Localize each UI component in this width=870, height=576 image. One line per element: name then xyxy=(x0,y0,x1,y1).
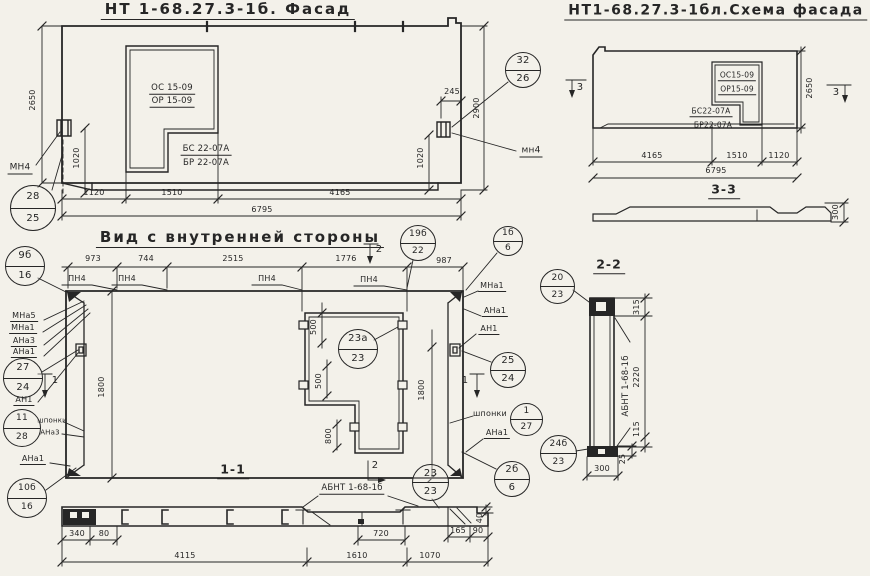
dim-s11-1070: 1070 xyxy=(419,552,440,560)
dim-facade-245: 245 xyxy=(444,88,460,96)
section-mark-1-left: 1 xyxy=(52,376,59,386)
label-ana3-left: АНа3 xyxy=(11,337,37,347)
blueprint-page: НТ 1-68.27.3-1б. Фасад ОС 15-09 ОР 15-09… xyxy=(0,0,870,576)
scheme-title: НТ1-68.27.3-1бл.Схема фасада xyxy=(564,4,867,21)
anchor-label-mn4-left: МН4 xyxy=(8,164,33,175)
section-1-1-title: 1-1 xyxy=(217,463,249,479)
facade-title: НТ 1-68.27.3-1б. Фасад xyxy=(101,2,355,20)
scheme-sill-mark-top: БС22-07А xyxy=(690,107,733,117)
callout-25-24: 2524 xyxy=(490,352,526,388)
dim-s11-40: 40 xyxy=(476,513,484,524)
section-mark-3-right: 3 xyxy=(833,88,840,98)
callout-9b-16: 9б16 xyxy=(5,246,45,286)
dim-scheme-total: 6795 xyxy=(705,167,726,175)
facade-sill-mark-top: БС 22-07А xyxy=(181,145,232,156)
label-abnt-s22: АБНТ 1-68-1б xyxy=(622,355,631,416)
dim-s11-165: 165 xyxy=(450,527,466,535)
label-ana1-left: АНа1 xyxy=(11,348,37,358)
dim-s11-4115: 4115 xyxy=(174,552,195,560)
label-pn4-1: ПН4 xyxy=(68,275,86,283)
label-pn4-4: ПН4 xyxy=(360,276,378,284)
label-shponki-left: шпонки xyxy=(37,418,67,425)
callout-1-27: 127 xyxy=(510,403,543,436)
callout-20-23: 2023 xyxy=(540,269,575,304)
callout-28-25: 2825 xyxy=(10,185,56,231)
dim-inner-1776: 1776 xyxy=(335,255,356,263)
callout-19b-22: 19б22 xyxy=(400,225,436,261)
section-mark-3-left: 3 xyxy=(577,83,584,93)
dim-inner-2515: 2515 xyxy=(222,255,243,263)
anchor-label-mn4-right: мн4 xyxy=(520,147,543,158)
dim-inner-973: 973 xyxy=(85,255,101,263)
dim-facade-1020-left: 1020 xyxy=(73,147,81,168)
dim-scheme-height: 2650 xyxy=(806,77,814,98)
label-ana3-left2: АНа3 xyxy=(40,430,60,437)
dim-s22-115: 115 xyxy=(633,421,641,437)
dim-scheme-300: 300 xyxy=(832,204,840,220)
dim-s22-2220: 2220 xyxy=(633,366,641,387)
label-mna1-left: МНа1 xyxy=(9,324,37,334)
callout-27-24: 2724 xyxy=(3,358,43,398)
dim-facade-1020-right: 1020 xyxy=(417,147,425,168)
dim-s11-1610: 1610 xyxy=(346,552,367,560)
facade-window-mark-bottom: ОР 15-09 xyxy=(150,97,195,108)
dim-scheme-4165: 4165 xyxy=(641,152,662,160)
facade-window-mark-top: ОС 15-09 xyxy=(149,84,195,95)
scheme-window-mark-top: ОС15-09 xyxy=(718,71,756,81)
scheme-window-mark-bottom: ОР15-09 xyxy=(718,85,756,95)
dim-s11-340: 340 xyxy=(69,530,85,538)
facade-sill-mark-bottom: БР 22-07А xyxy=(183,159,229,168)
label-abnt-s11: АБНТ 1-68-1б xyxy=(319,484,384,495)
dim-s11-80: 80 xyxy=(99,530,110,538)
dim-s11-90: 90 xyxy=(473,527,484,535)
label-shponki-right: шпонки xyxy=(473,410,507,418)
dim-inner-1800-left: 1800 xyxy=(98,376,106,397)
callout-32-26: 3226 xyxy=(505,52,541,88)
dim-inner-987: 987 xyxy=(436,257,452,265)
section-mark-2-top: 2 xyxy=(376,245,383,255)
dim-inner-1800-right: 1800 xyxy=(418,379,426,400)
dim-facade-4165: 4165 xyxy=(329,189,350,197)
dim-window-500-top: 500 xyxy=(310,319,318,335)
label-ana1-right: АНа1 xyxy=(482,307,508,317)
callout-1b-6: 1б6 xyxy=(493,226,523,256)
section-mark-1-right: 1 xyxy=(462,376,469,386)
dim-window-800: 800 xyxy=(325,428,333,444)
label-pn4-3: ПН4 xyxy=(258,275,276,283)
label-ana1-right2: АНа1 xyxy=(484,429,510,439)
dim-facade-1510: 1510 xyxy=(161,189,182,197)
label-pn4-2: ПН4 xyxy=(118,275,136,283)
section-2-2-title: 2-2 xyxy=(593,258,625,274)
dim-s22-300: 300 xyxy=(594,465,610,473)
dim-window-500-mid: 500 xyxy=(315,373,323,389)
callout-23-23: 2323 xyxy=(412,464,449,501)
callout-2b-6: 2б6 xyxy=(494,461,530,497)
dim-facade-total: 6795 xyxy=(251,206,272,214)
dim-inner-744: 744 xyxy=(138,255,154,263)
section-mark-2-bottom: 2 xyxy=(372,461,379,471)
label-mna1-right: МНа1 xyxy=(478,282,506,292)
dim-facade-height-left: 2650 xyxy=(29,89,37,110)
dim-scheme-1120: 1120 xyxy=(768,152,789,160)
label-ana1-bottom-left: АНа1 xyxy=(20,455,46,465)
callout-10b-16: 10б16 xyxy=(7,478,47,518)
callout-24b-23: 24б23 xyxy=(540,435,577,472)
scheme-sill-mark-bottom: БР22-07А xyxy=(694,121,732,129)
label-an1-right: АН1 xyxy=(478,325,499,335)
inner-view-title: Вид с внутренней стороны xyxy=(96,230,384,248)
dim-s22-25: 25 xyxy=(619,454,627,465)
dim-facade-1120: 1120 xyxy=(83,189,104,197)
label-mna5: МНа5 xyxy=(10,312,38,322)
dim-s22-315: 315 xyxy=(633,299,641,315)
dim-s11-720: 720 xyxy=(373,530,389,538)
dim-scheme-1510: 1510 xyxy=(726,152,747,160)
dim-facade-height-right: 2900 xyxy=(473,97,481,118)
section-3-3-title: 3-3 xyxy=(708,183,740,199)
callout-23a-23: 23а23 xyxy=(338,329,378,369)
callout-11-28: 1128 xyxy=(3,409,41,447)
